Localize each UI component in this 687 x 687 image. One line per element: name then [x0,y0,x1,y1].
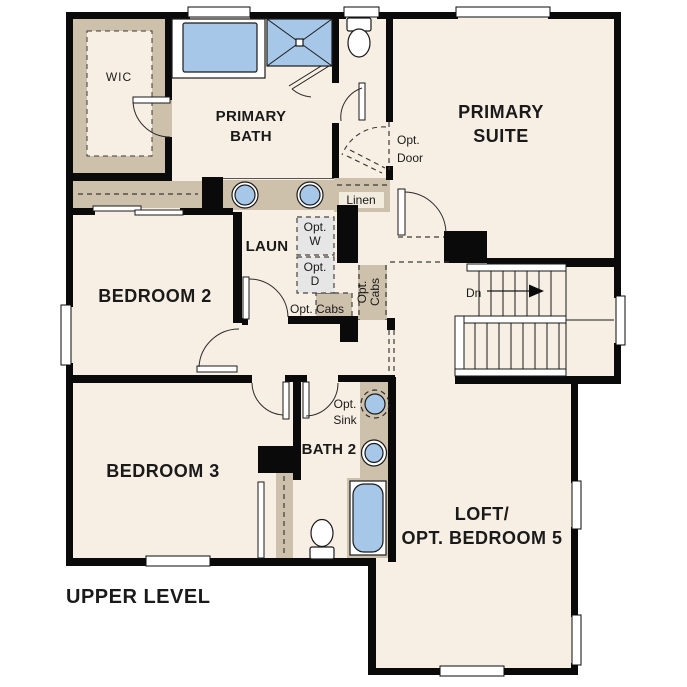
wic-label: WIC [106,70,132,84]
window-bedroom3 [146,556,210,566]
opt-cabs-vert-label-line1: Opt. [355,281,369,304]
loft-label-line1: LOFT/ [455,504,510,524]
opt-sink-label-line2: Sink [333,413,357,427]
window-loft-south [440,666,504,676]
wic-shelving-dashed [87,31,152,156]
primary-suite-label-line2: SUITE [473,126,529,146]
floor-plan-page: WIC PRIMARY BATH PRIMARY SUITE BEDROOM 2… [0,0,687,687]
plan-title: UPPER LEVEL [66,586,210,608]
bath2-label: BATH 2 [302,441,357,458]
laundry-label: LAUN [246,238,289,255]
window-primary-bath [188,7,250,17]
loft-label-line2: OPT. BEDROOM 5 [401,528,562,548]
opt-door-label-line1: Opt. [397,133,420,147]
primary-tub [172,19,265,78]
primary-sink-2 [297,182,323,208]
primary-toilet [347,18,371,57]
primary-bath-label-line1: PRIMARY [216,108,287,125]
linen-label: Linen [346,193,375,207]
window-loft-east-1 [572,481,581,529]
opt-door-label-line2: Door [397,151,423,165]
opt-washer-label-line1: Opt. [304,220,327,234]
window-loft-east-2 [572,615,581,665]
bath2-tub [350,481,386,555]
opt-cabs-vert-label-line2: Cabs [368,278,382,306]
bath2-sink [362,440,387,466]
window-primary-suite [456,7,550,17]
primary-sink-1 [232,182,258,208]
floor-plan-canvas: WIC PRIMARY BATH PRIMARY SUITE BEDROOM 2… [0,0,687,687]
bedroom2-label: BEDROOM 2 [98,286,212,306]
opt-sink-label-line1: Opt. [334,397,357,411]
bedroom2-closet-zone [73,181,202,208]
primary-bath-label-line2: BATH [230,128,272,145]
window-stairwell [616,296,625,345]
primary-shower [267,19,332,66]
opt-dryer-label-line1: Opt. [304,260,327,274]
window-bedroom2 [61,305,71,365]
window-water-closet [344,7,379,17]
opt-cabs-hall-label: Opt. Cabs [290,302,344,316]
opt-dryer-label-line2: D [311,274,320,288]
bath2-toilet [310,520,334,560]
opt-washer-label-line2: W [309,234,321,248]
bedroom3-label: BEDROOM 3 [106,461,220,481]
primary-suite-label-line1: PRIMARY [458,102,544,122]
stairs-down-label: Dn [466,286,481,300]
bedroom3-closet-door [258,482,264,558]
